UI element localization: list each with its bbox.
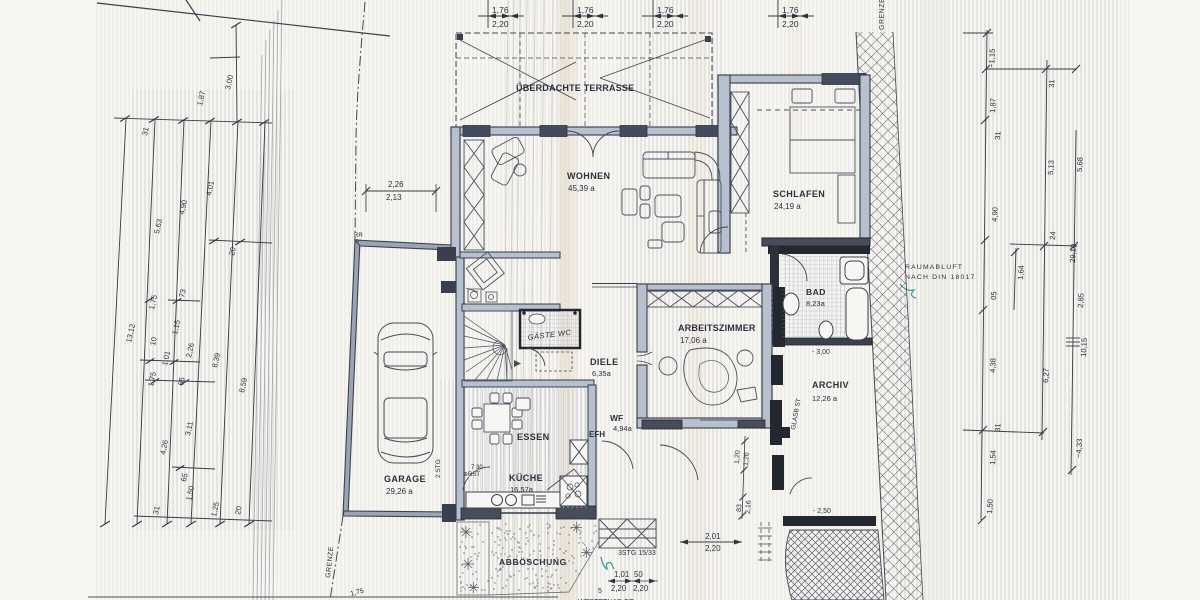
svg-text:5,68: 5,68	[1075, 157, 1085, 172]
svg-text:1,76: 1,76	[492, 5, 509, 15]
svg-text:ÜBERDACHTE TERRASSE: ÜBERDACHTE TERRASSE	[516, 83, 634, 93]
svg-text:1,54: 1,54	[988, 450, 998, 465]
svg-text:ARCHIV: ARCHIV	[812, 380, 849, 390]
svg-text:EFH: EFH	[589, 430, 605, 439]
svg-text:31: 31	[1047, 79, 1056, 88]
svg-text:2,20: 2,20	[577, 19, 594, 29]
svg-text:12,26 a: 12,26 a	[812, 394, 838, 403]
svg-text:- 3,00: - 3,00	[812, 349, 830, 356]
svg-text:16,57a: 16,57a	[510, 485, 534, 494]
svg-text:31: 31	[993, 131, 1002, 140]
svg-text:WOHNEN: WOHNEN	[567, 171, 610, 181]
svg-text:2,85: 2,85	[1076, 293, 1086, 308]
svg-text:1,76: 1,76	[782, 5, 799, 15]
svg-text:2,20: 2,20	[633, 584, 649, 593]
svg-text:ABBÖSCHUNG: ABBÖSCHUNG	[499, 557, 567, 567]
svg-text:2,16: 2,16	[745, 500, 753, 514]
svg-text:29,10: 29,10	[1068, 244, 1078, 263]
svg-text:1,76: 1,76	[577, 5, 594, 15]
svg-text:2,13: 2,13	[386, 193, 402, 202]
svg-text:1,64: 1,64	[1016, 265, 1026, 280]
svg-text:5: 5	[598, 588, 602, 595]
svg-text:ARBEITSZIMMER: ARBEITSZIMMER	[678, 323, 756, 333]
svg-text:50: 50	[634, 570, 643, 579]
svg-text:24,19 a: 24,19 a	[774, 202, 801, 211]
svg-text:05: 05	[989, 291, 998, 300]
svg-text:SCHLAFEN: SCHLAFEN	[773, 189, 825, 199]
svg-text:8,23a: 8,23a	[806, 299, 826, 308]
svg-text:1,01: 1,01	[614, 570, 629, 579]
svg-text:1,50: 1,50	[985, 499, 995, 514]
svg-text:2,01: 2,01	[705, 532, 721, 541]
svg-text:DIELE: DIELE	[590, 357, 619, 367]
svg-text:6,35a: 6,35a	[592, 369, 612, 378]
svg-text:17,06 a: 17,06 a	[680, 336, 707, 345]
svg-text:ESSEN: ESSEN	[517, 432, 550, 442]
svg-text:2,20: 2,20	[705, 544, 721, 553]
svg-text:4,94a: 4,94a	[613, 424, 633, 433]
svg-text:BAD: BAD	[806, 287, 826, 297]
svg-text:- 2,50: - 2,50	[813, 508, 831, 515]
svg-text:2,26: 2,26	[388, 180, 404, 189]
svg-text:3STG 15/33: 3STG 15/33	[618, 550, 656, 557]
svg-text:7 30: 7 30	[471, 465, 483, 471]
svg-text:6,27: 6,27	[1041, 368, 1051, 383]
svg-text:4,90: 4,90	[990, 207, 1000, 222]
svg-text:GRENZE: GRENZE	[879, 0, 886, 30]
svg-text:−1,15: −1,15	[987, 48, 997, 68]
svg-text:24: 24	[1048, 231, 1057, 240]
svg-text:2 STG: 2 STG	[435, 459, 442, 478]
svg-text:1,76: 1,76	[657, 5, 674, 15]
svg-text:1,20: 1,20	[734, 450, 742, 464]
svg-text:NACH DIN 18017: NACH DIN 18017	[905, 274, 975, 281]
svg-text:2,20: 2,20	[782, 19, 799, 29]
svg-text:45,39 a: 45,39 a	[568, 184, 595, 193]
svg-text:⊕RST: ⊕RST	[463, 472, 480, 478]
svg-text:29,26 a: 29,26 a	[386, 487, 413, 496]
svg-text:5,13: 5,13	[1046, 160, 1056, 175]
svg-text:2,20: 2,20	[611, 584, 627, 593]
svg-text:10,15: 10,15	[1079, 338, 1089, 357]
svg-text:1,26: 1,26	[743, 452, 751, 466]
svg-text:−4,33: −4,33	[1074, 438, 1084, 458]
svg-text:1,87: 1,87	[988, 98, 998, 113]
svg-text:31: 31	[993, 423, 1002, 432]
svg-text:83: 83	[736, 504, 743, 512]
svg-text:2,20: 2,20	[657, 19, 674, 29]
svg-text:2,20: 2,20	[492, 19, 509, 29]
svg-text:RAUMABLUFT: RAUMABLUFT	[905, 264, 963, 271]
svg-text:GARAGE: GARAGE	[384, 474, 426, 484]
svg-text:KÜCHE: KÜCHE	[509, 473, 543, 483]
svg-text:4,38: 4,38	[988, 358, 998, 373]
svg-text:WF: WF	[610, 413, 623, 423]
